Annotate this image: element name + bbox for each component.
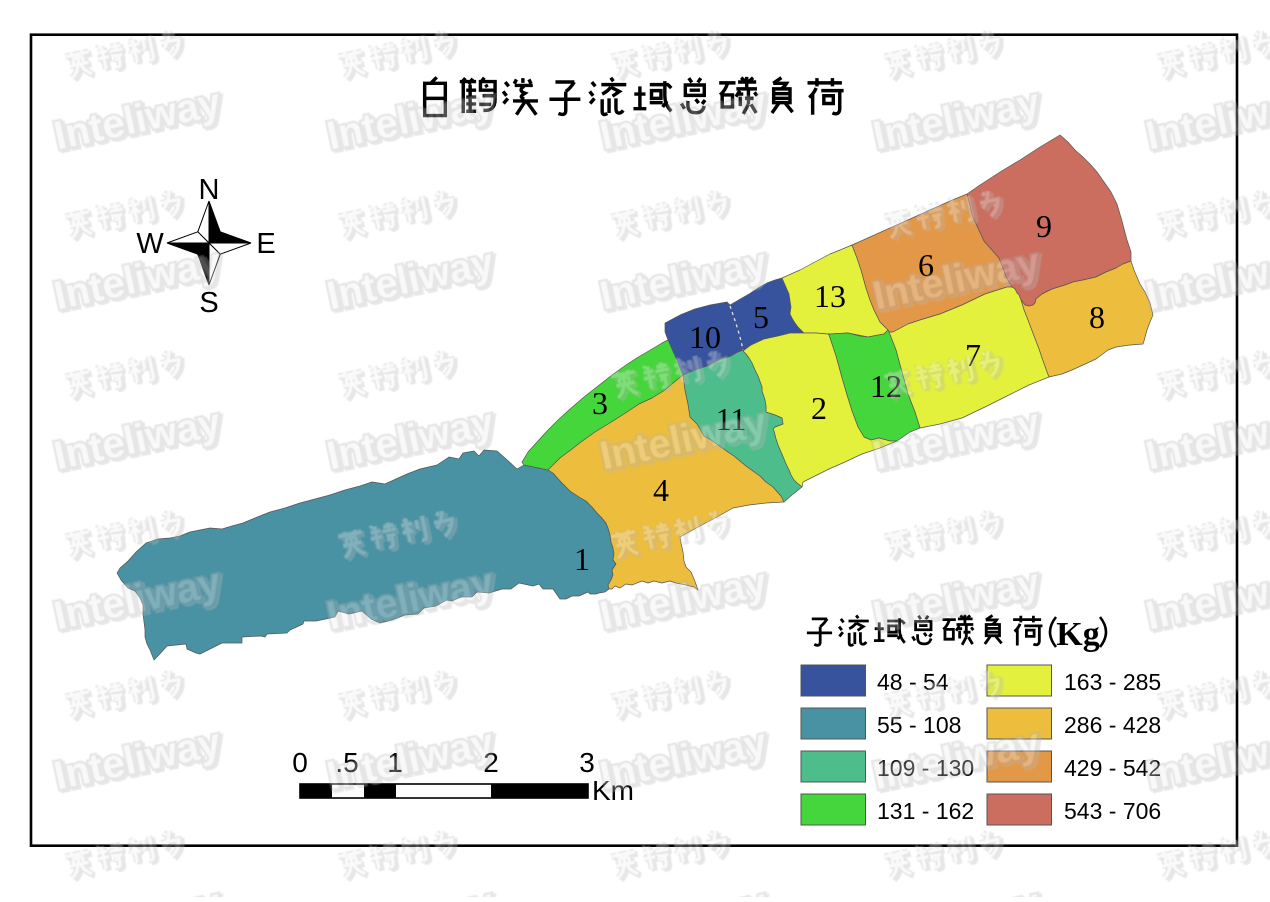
svg-text:543 - 706: 543 - 706 <box>1064 798 1161 824</box>
svg-text:2: 2 <box>811 390 827 426</box>
svg-text:0: 0 <box>292 747 308 778</box>
svg-text:286 - 428: 286 - 428 <box>1064 712 1161 738</box>
svg-text:163 - 285: 163 - 285 <box>1064 669 1161 695</box>
svg-text:Kg: Kg <box>1056 616 1099 653</box>
svg-text:3: 3 <box>579 747 595 778</box>
svg-text:S: S <box>199 287 218 319</box>
svg-text:E: E <box>256 228 275 260</box>
svg-text:10: 10 <box>689 319 721 355</box>
svg-text:5: 5 <box>753 299 769 335</box>
svg-text:1: 1 <box>574 541 590 577</box>
svg-text:13: 13 <box>814 278 846 314</box>
svg-text:131 - 162: 131 - 162 <box>877 798 974 824</box>
svg-text:N: N <box>199 174 220 206</box>
svg-text:9: 9 <box>1036 208 1052 244</box>
svg-text:4: 4 <box>653 472 669 508</box>
svg-text:8: 8 <box>1089 299 1105 335</box>
svg-text:3: 3 <box>592 385 608 421</box>
